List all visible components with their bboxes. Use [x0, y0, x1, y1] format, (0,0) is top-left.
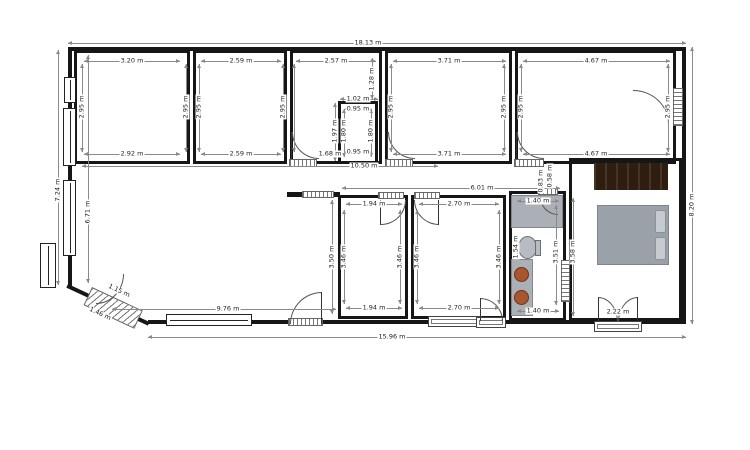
dimension-line — [82, 166, 438, 167]
dim-room7-left: 3.46 m — [414, 245, 421, 270]
floor-plan: 18.13 m 15.96 m 7.24 m 6.71 m 8.20 m 1.4… — [0, 0, 750, 450]
pillow — [655, 237, 666, 260]
dim-overall-bottom: 15.96 m — [377, 334, 406, 341]
dim-room3-above-closet: 1.28 m — [369, 67, 376, 92]
room-2 — [193, 50, 287, 164]
dim-overall-right: 8.20 m — [689, 193, 696, 218]
dim-room2-left: 2.95 m — [196, 95, 203, 120]
dim-overall-left-outer: 7.24 m — [55, 178, 62, 203]
door-leaf — [387, 132, 388, 159]
dim-room2-bottom: 2.59 m — [229, 151, 254, 158]
dim-hallway-door-b: 0.58 m — [547, 164, 554, 189]
dim-room1-bottom: 2.92 m — [120, 151, 145, 158]
dim-room6-left-outer: 3.50 m — [329, 245, 336, 270]
dim-room3-door: 1.68 m — [318, 151, 343, 158]
dim-room5-bottom: 4.67 m — [584, 151, 609, 158]
door-leaf — [516, 132, 517, 159]
dimension-line — [692, 47, 693, 324]
dim-bathroom-left: 1.54 m — [513, 235, 520, 260]
window — [63, 180, 76, 256]
sink — [514, 290, 529, 305]
dim-bedroom-left: 3.58 m — [570, 240, 577, 265]
door-opening — [414, 192, 440, 199]
door-opening — [302, 191, 334, 198]
dimension-line — [294, 64, 295, 152]
window — [64, 77, 76, 103]
door-sill — [428, 316, 482, 327]
dimension-line — [88, 55, 89, 283]
door-leaf — [480, 298, 481, 321]
window — [63, 108, 76, 166]
dim-room4-left: 2.95 m — [388, 95, 395, 120]
dim-living-width: 10.50 m — [349, 163, 378, 170]
window — [673, 88, 683, 126]
dim-room1-left: 2.95 m — [79, 95, 86, 120]
room-1 — [74, 50, 190, 164]
dim-room6-top: 1.94 m — [362, 201, 387, 208]
toilet-tank — [535, 240, 541, 256]
dim-room1-top: 3.20 m — [120, 58, 145, 65]
door-arc — [290, 292, 322, 324]
door-leaf — [598, 297, 599, 322]
dim-bathroom-right: 3.51 m — [553, 240, 560, 265]
dim-bathroom-top: 1.40 m — [526, 198, 551, 205]
window — [40, 243, 56, 288]
dim-closet-left-outer: 1.97 m — [332, 119, 339, 144]
dim-room2-top: 2.59 m — [229, 58, 254, 65]
dim-hallway-length: 6.01 m — [470, 185, 495, 192]
sink — [514, 267, 529, 282]
dim-room4-bottom: 3.71 m — [437, 151, 462, 158]
dim-overall-top: 18.13 m — [353, 40, 382, 47]
dim-room6-right: 3.46 m — [397, 245, 404, 270]
dim-living-bottom: 9.76 m — [216, 306, 241, 313]
dim-hallway-door-a: 0.83 m — [538, 169, 545, 194]
dim-closet-bottom: 0.95 m — [346, 149, 371, 156]
wardrobe — [594, 163, 668, 190]
pillow — [655, 210, 666, 233]
dim-closet-top-outer: 1.02 m — [346, 96, 371, 103]
dim-room5-top: 4.67 m — [584, 58, 609, 65]
door-leaf — [637, 297, 638, 322]
dim-closet-top-inner: 0.95 m — [346, 106, 371, 113]
dim-room6-left-inner: 3.46 m — [341, 245, 348, 270]
dim-closet-left-inner: 1.80 m — [341, 119, 348, 144]
door-opening — [514, 159, 544, 167]
dim-room1-right: 2.95 m — [183, 95, 190, 120]
dim-room2-right: 2.95 m — [280, 95, 287, 120]
dim-bathroom-bottom: 1.40 m — [526, 308, 551, 315]
door-leaf — [291, 132, 292, 159]
dim-room4-top: 3.71 m — [437, 58, 462, 65]
dim-room7-right: 3.46 m — [496, 245, 503, 270]
dim-room6-bottom: 1.94 m — [362, 305, 387, 312]
dim-bedroom-door: 2.22 m — [606, 309, 631, 316]
door-opening — [378, 192, 404, 199]
dim-overall-left-inner: 6.71 m — [85, 200, 92, 225]
dimension-line — [58, 50, 59, 285]
door-leaf — [321, 292, 322, 324]
dim-room4-right: 2.95 m — [501, 95, 508, 120]
door-opening — [561, 260, 570, 302]
dim-room5-left: 2.95 m — [518, 95, 525, 120]
dimension-line — [342, 188, 560, 189]
dim-room7-bottom: 2.70 m — [447, 305, 472, 312]
door-sill — [594, 321, 642, 332]
dimension-line — [148, 337, 686, 338]
dim-room5-right: 2.95 m — [665, 95, 672, 120]
dim-room7-top: 2.70 m — [447, 201, 472, 208]
dim-closet-right: 1.80 m — [368, 119, 375, 144]
window — [166, 314, 252, 326]
dim-room3-top: 2.57 m — [324, 58, 349, 65]
